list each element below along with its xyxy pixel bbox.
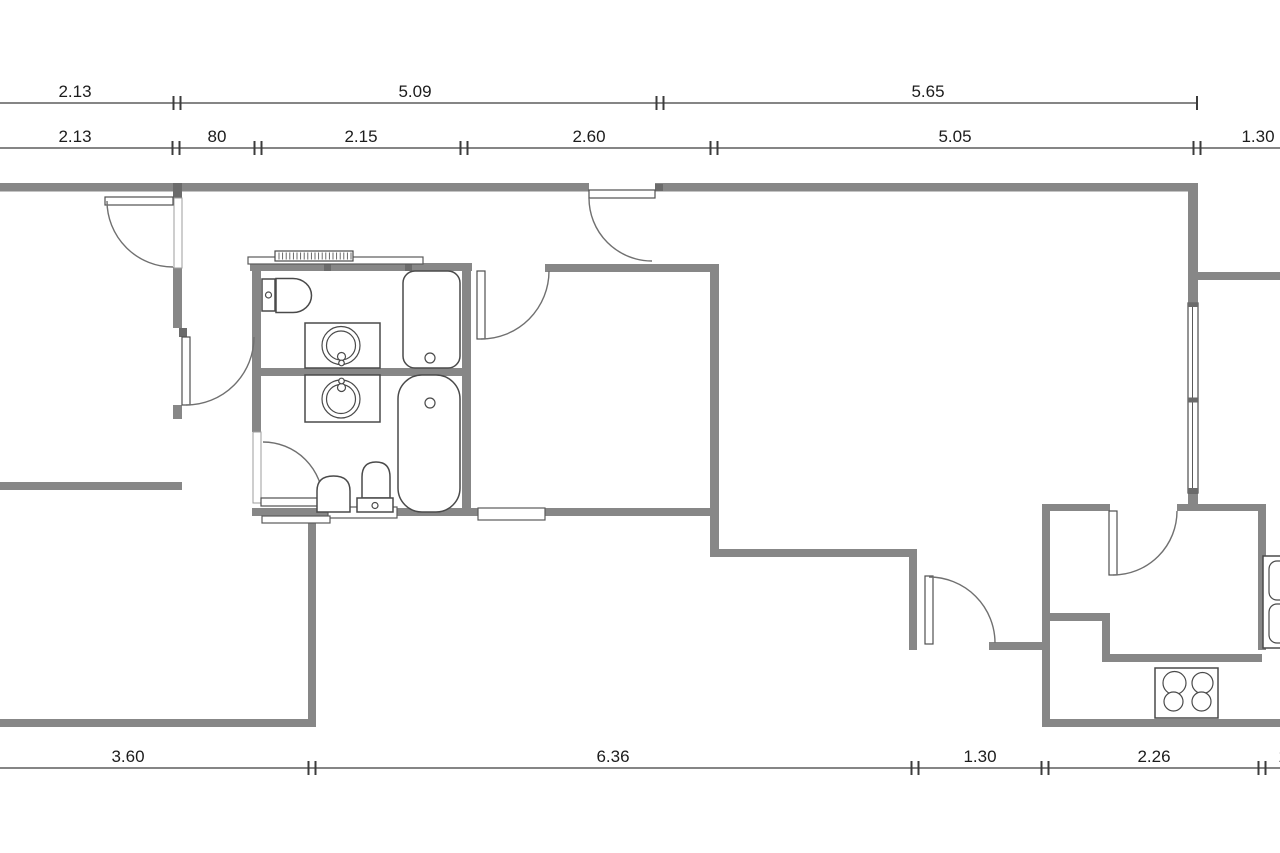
bathtub-lower (398, 375, 460, 512)
dim-label: 2.13 (58, 82, 91, 101)
toilet-upper (262, 279, 312, 313)
interior-walls (0, 183, 1280, 727)
floor-plan: 2.13 5.09 5.65 2.13 80 2.15 2.60 5.05 1.… (0, 0, 1280, 853)
washbasin-upper (305, 323, 380, 368)
dim-label: 2.15 (344, 127, 377, 146)
wc-door (253, 432, 323, 506)
hallway-door (182, 337, 254, 405)
toilet-lower (357, 462, 393, 512)
radiator (275, 251, 353, 261)
dim-label: 5.65 (911, 82, 944, 101)
floor-plan-canvas: 2.13 5.09 5.65 2.13 80 2.15 2.60 5.05 1.… (0, 0, 1280, 853)
kitchen-sink (1263, 556, 1280, 648)
handbasin-lower (317, 476, 350, 512)
bathtub-upper (403, 271, 460, 368)
dim-label: 80 (208, 127, 227, 146)
interior-window-2 (478, 508, 545, 520)
dim-label: 2.60 (572, 127, 605, 146)
window-right (1188, 303, 1198, 494)
dim-label: 1.30 (1241, 127, 1274, 146)
wc-shelf (262, 516, 330, 523)
kitchen-counter (1042, 613, 1262, 662)
dim-label: 5.05 (938, 127, 971, 146)
dimension-row-top-outer: 2.13 5.09 5.65 (0, 82, 1197, 110)
dim-label: 3.60 (111, 747, 144, 766)
hall-door (925, 576, 995, 644)
dimension-row-bottom: 3.60 6.36 1.30 2.26 1 (0, 747, 1280, 775)
dimension-row-top-inner: 2.13 80 2.15 2.60 5.05 1.30 (0, 127, 1280, 155)
kitchen-door (1109, 511, 1177, 575)
dim-label: 1.30 (963, 747, 996, 766)
middle-room-door (477, 271, 549, 339)
dim-label: 5.09 (398, 82, 431, 101)
bedroom-door (105, 197, 182, 268)
dim-label: 6.36 (596, 747, 629, 766)
dim-label: 2.26 (1137, 747, 1170, 766)
dim-label: 2.13 (58, 127, 91, 146)
stove (1155, 668, 1218, 718)
washbasin-lower (305, 375, 380, 422)
entrance-door (589, 190, 655, 261)
